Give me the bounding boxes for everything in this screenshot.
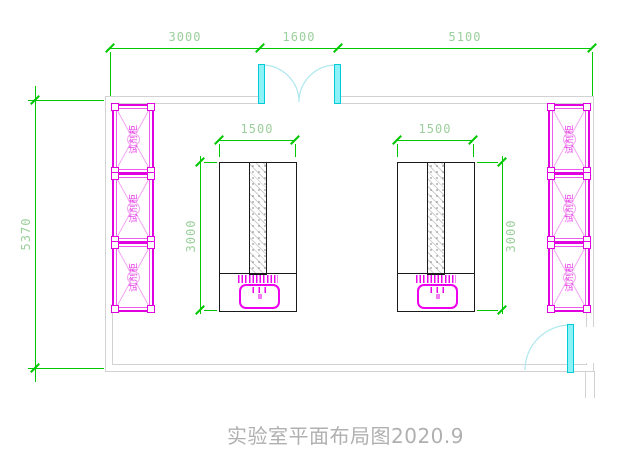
cabinet-label-text: 试剂柜 bbox=[130, 262, 140, 292]
cabinet-corner-nub bbox=[111, 241, 119, 249]
dim-value: 3000 bbox=[169, 30, 202, 44]
cabinet-corner-nub bbox=[147, 172, 155, 180]
dim-text-top-right: 5100 bbox=[449, 30, 482, 44]
cabinet-label: 试剂柜 bbox=[127, 262, 140, 292]
dim-value: 1600 bbox=[283, 30, 316, 44]
dim-ext bbox=[204, 162, 217, 163]
dim-line-bench-left-width bbox=[219, 140, 295, 141]
sink-drain-dot bbox=[258, 294, 262, 299]
dim-ext bbox=[397, 144, 398, 157]
bench-divider-line bbox=[220, 273, 296, 274]
cabinet-corner-nub bbox=[111, 103, 119, 111]
cabinet-corner-nub bbox=[111, 172, 119, 180]
cabinet-label: 试剂柜 bbox=[563, 262, 576, 292]
sink-tap-ticks bbox=[430, 287, 445, 293]
sink-tap-ticks bbox=[252, 287, 267, 293]
dim-ext bbox=[477, 310, 498, 311]
cabinet-corner-nub bbox=[547, 241, 555, 249]
cabinet-label-text: 试剂柜 bbox=[130, 193, 140, 223]
dim-text-bench-left-depth: 3000 bbox=[184, 220, 198, 253]
sink-grate bbox=[238, 275, 278, 283]
floor-plan-canvas: 3000 1600 5100 5370 试剂柜 试剂柜 试剂柜 bbox=[0, 0, 619, 469]
cabinet-label: 试剂柜 bbox=[127, 124, 140, 154]
dim-ext-top-right bbox=[592, 52, 593, 96]
cabinet-corner-nub bbox=[583, 172, 591, 180]
bench-center-strip bbox=[427, 162, 445, 275]
cabinet-label: 试剂柜 bbox=[563, 124, 576, 154]
cabinet-corner-nub bbox=[147, 305, 155, 313]
dim-text-top-left: 3000 bbox=[169, 30, 202, 44]
dim-value: 5370 bbox=[19, 218, 33, 251]
cabinet-corner-nub bbox=[547, 172, 555, 180]
side-door-arc bbox=[525, 325, 570, 370]
dim-ext-room-bottom bbox=[28, 368, 104, 369]
reagent-cabinet: 试剂柜 bbox=[112, 242, 154, 312]
dim-value: 1500 bbox=[241, 122, 274, 136]
reagent-cabinet: 试剂柜 bbox=[112, 173, 154, 243]
cabinet-label: 试剂柜 bbox=[563, 193, 576, 223]
dim-ext bbox=[219, 144, 220, 157]
cabinet-corner-nub bbox=[547, 103, 555, 111]
reagent-cabinet: 试剂柜 bbox=[548, 104, 590, 174]
double-door-leaf-left bbox=[258, 64, 265, 104]
cabinet-corner-nub bbox=[583, 241, 591, 249]
cabinet-label-text: 试剂柜 bbox=[566, 193, 576, 223]
dim-line-bench-right-width bbox=[397, 140, 473, 141]
cabinet-label-text: 试剂柜 bbox=[566, 124, 576, 154]
drawing-title-text: 实验室平面布局图2020.9 bbox=[227, 424, 464, 448]
cabinet-corner-nub bbox=[147, 241, 155, 249]
dim-ext-top-left bbox=[110, 52, 111, 96]
double-door-leaf-right bbox=[334, 64, 341, 104]
dim-value: 3000 bbox=[184, 220, 198, 253]
dim-text-room-height: 5370 bbox=[19, 218, 33, 251]
sink-grate bbox=[416, 275, 456, 283]
sink-basin bbox=[417, 284, 458, 309]
cabinet-corner-nub bbox=[111, 305, 119, 313]
cabinet-corner-nub bbox=[547, 305, 555, 313]
cabinet-corner-nub bbox=[583, 305, 591, 313]
dim-line-bench-right-depth bbox=[502, 156, 503, 314]
dim-line-top bbox=[110, 48, 592, 49]
reagent-cabinet: 试剂柜 bbox=[548, 173, 590, 243]
sink-basin bbox=[239, 284, 280, 309]
bench-center-strip bbox=[249, 162, 267, 275]
lab-bench-right bbox=[397, 162, 475, 312]
dim-ext bbox=[204, 310, 217, 311]
right-door-arc bbox=[299, 65, 336, 102]
dim-ext bbox=[473, 144, 474, 157]
dim-ext bbox=[295, 144, 296, 157]
cabinet-label-text: 试剂柜 bbox=[130, 124, 140, 154]
dim-line-room-height bbox=[35, 86, 36, 382]
reagent-cabinet: 试剂柜 bbox=[548, 242, 590, 312]
bench-divider-line bbox=[398, 273, 474, 274]
dim-text-bench-right-depth: 3000 bbox=[504, 220, 518, 253]
sink-drain-dot bbox=[436, 294, 440, 299]
dim-value: 1500 bbox=[419, 122, 452, 136]
lab-bench-left bbox=[219, 162, 297, 312]
dim-value: 5100 bbox=[449, 30, 482, 44]
dim-line-bench-left-depth bbox=[200, 156, 201, 314]
cabinet-corner-nub bbox=[147, 103, 155, 111]
side-door-leaf bbox=[567, 324, 574, 373]
left-door-arc bbox=[262, 65, 299, 102]
cabinet-label-text: 试剂柜 bbox=[566, 262, 576, 292]
dim-text-bench-left-width: 1500 bbox=[241, 122, 274, 136]
reagent-cabinet: 试剂柜 bbox=[112, 104, 154, 174]
cabinet-corner-nub bbox=[583, 103, 591, 111]
dim-ext-room-top bbox=[28, 100, 104, 101]
dim-text-top-middle: 1600 bbox=[283, 30, 316, 44]
drawing-title: 实验室平面布局图2020.9 bbox=[227, 420, 464, 449]
dim-text-bench-right-width: 1500 bbox=[419, 122, 452, 136]
dim-value: 3000 bbox=[504, 220, 518, 253]
door-swing-arcs bbox=[0, 0, 619, 469]
dim-ext bbox=[477, 162, 498, 163]
cabinet-label: 试剂柜 bbox=[127, 193, 140, 223]
